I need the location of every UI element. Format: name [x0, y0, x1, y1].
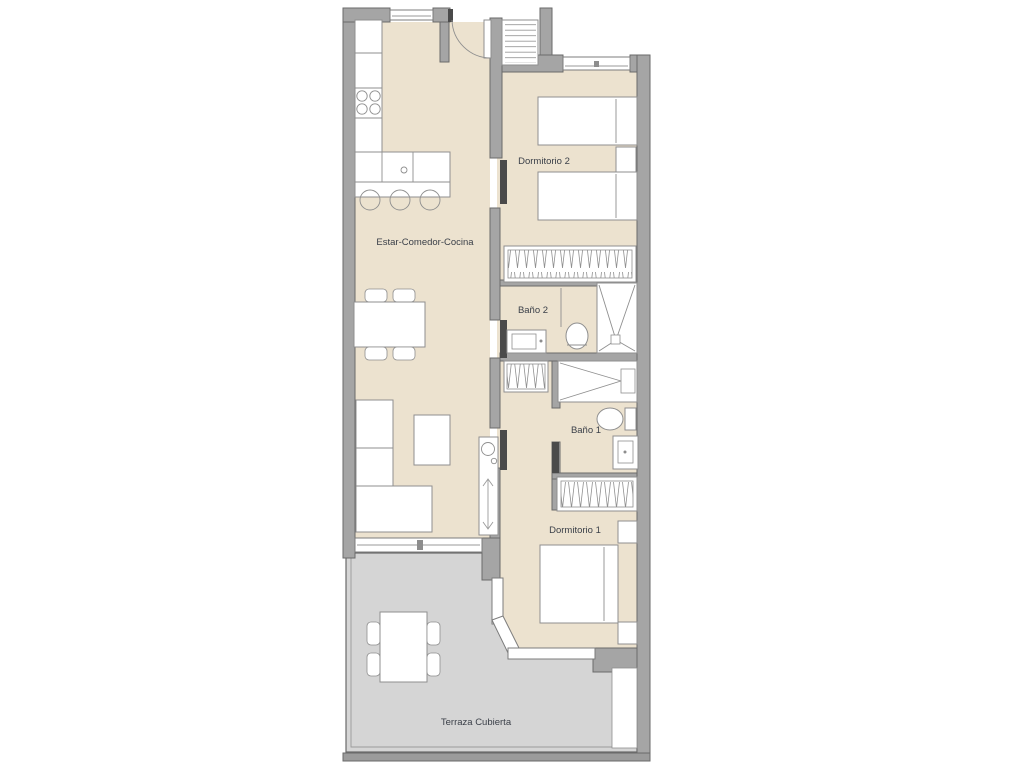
terrace-sliding-door [355, 538, 482, 552]
terrace-chair [367, 622, 380, 645]
dining-chair [365, 289, 387, 302]
dining-chair [365, 347, 387, 360]
utility-cabinet [479, 437, 498, 535]
wall-bath2-bottom [500, 353, 637, 361]
washbasin-bath1 [613, 436, 638, 469]
bath2-door-leaf [500, 320, 507, 358]
wall-partition-1 [490, 18, 502, 158]
sofa-horizontal [356, 486, 432, 532]
entry-closet [502, 20, 538, 65]
hall-closet [504, 361, 548, 392]
coffee-table [414, 415, 450, 465]
bed-outline [540, 545, 618, 623]
page: Estar-Comedor-Cocina Dormitorio 2 Baño 2… [0, 0, 1024, 768]
entrance-door-panel [484, 20, 491, 58]
bedroom2-window [563, 57, 630, 70]
tap-icon [540, 340, 543, 343]
dining-chair [393, 289, 415, 302]
wardrobe-bedroom2 [504, 246, 636, 282]
wardrobe-bedroom1 [557, 477, 637, 511]
bed-single-a [538, 97, 637, 145]
wall-bottom-band [343, 753, 650, 761]
basin-inset [512, 334, 536, 349]
room-label-terrace: Terraza Cubierta [441, 717, 512, 728]
bedroom1-glass-bottom [508, 648, 595, 659]
bed-outline [538, 97, 637, 145]
room-label-bath1: Baño 1 [571, 425, 601, 436]
bed-double [540, 545, 618, 623]
terrace-chair [427, 653, 440, 676]
bed-single-b [538, 172, 637, 220]
bedroom2-door-leaf [500, 160, 507, 204]
terrace-chair [367, 653, 380, 676]
tap-icon [624, 451, 627, 454]
room-label-living: Estar-Comedor-Cocina [376, 237, 474, 248]
wall-terrace-corner [482, 538, 500, 580]
bed-outline [538, 172, 637, 220]
room-label-bedroom2: Dormitorio 2 [518, 156, 570, 167]
toilet-bath2 [566, 323, 588, 349]
room-label-bedroom1: Dormitorio 1 [549, 525, 601, 536]
wardrobe-hatch [561, 481, 633, 507]
shower-drain [611, 335, 620, 344]
toilet-bath1 [597, 408, 636, 430]
bathtub [558, 361, 637, 402]
wall-left [343, 8, 355, 558]
dining-table [354, 302, 425, 347]
nightstand [618, 521, 637, 543]
cooktop [355, 88, 382, 118]
kitchen-window-frame [390, 10, 433, 20]
wardrobe-hatch [508, 250, 632, 278]
terrace-slider-mullion [417, 540, 423, 550]
washbasin-bath2 [507, 330, 546, 353]
wall-top-b [433, 8, 450, 22]
wall-partition-3 [490, 358, 500, 428]
bathtub-faucet-deck [621, 369, 635, 393]
dining-chair [393, 347, 415, 360]
hall-door-leaf [500, 430, 507, 470]
kitchen-tall-unit [355, 20, 382, 53]
wall-right [637, 55, 650, 760]
terrace-side-strip [612, 668, 637, 748]
toilet-cistern [625, 408, 636, 430]
sofa-vertical [356, 400, 393, 486]
nightstand [616, 147, 636, 172]
nightstand [618, 622, 637, 644]
bedroom2-window-mullion [594, 61, 599, 67]
room-label-bath2: Baño 2 [518, 305, 548, 316]
closet-hatch [507, 364, 545, 389]
floor-plan: Estar-Comedor-Cocina Dormitorio 2 Baño 2… [0, 0, 1024, 768]
kitchen-window [390, 10, 433, 20]
wall-partition-2 [490, 208, 500, 320]
island-bar [355, 182, 450, 197]
bath1-door-leaf [552, 442, 559, 473]
terrace-chair [427, 622, 440, 645]
entry-closet-shelves [504, 22, 536, 63]
terrace-table [380, 612, 427, 682]
wall-kitchen-stub [440, 22, 449, 62]
shower-bath2 [597, 283, 637, 353]
